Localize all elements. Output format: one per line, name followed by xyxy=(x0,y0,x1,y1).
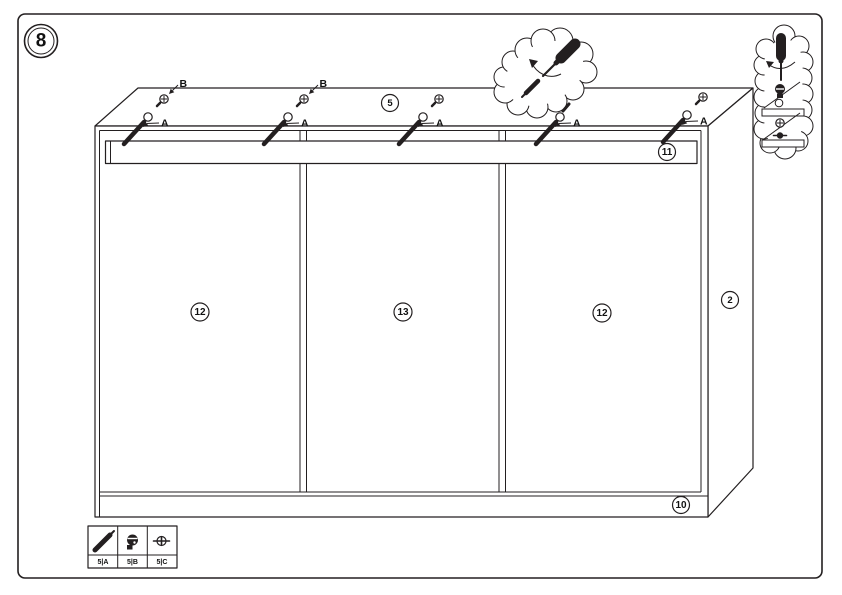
part-label-bottom-rail: 10 xyxy=(673,497,690,514)
hardware-legend: 5|A 5|B 5|C xyxy=(88,526,177,568)
part-label-right-door: 12 xyxy=(593,304,611,322)
part-label-left-door: 12 xyxy=(191,303,209,321)
svg-text:13: 13 xyxy=(397,307,409,318)
part-label-top-rail: 11 xyxy=(659,144,676,161)
callout-letter-a: A xyxy=(700,116,708,128)
front-frame xyxy=(95,126,708,517)
legend-label-b: 5|B xyxy=(127,559,138,566)
panel-edge xyxy=(762,140,804,147)
step-badge: 8 xyxy=(25,25,58,58)
callout-letter-a: A xyxy=(573,118,581,130)
assembly-detail-cloud xyxy=(754,25,813,159)
legend-label-a: 5|A xyxy=(98,559,109,566)
legend-label-c: 5|C xyxy=(157,559,168,566)
cam-hole-icon xyxy=(556,113,564,121)
part-label-top-panel: 5 xyxy=(382,95,399,112)
svg-text:12: 12 xyxy=(194,307,206,318)
part-label-middle-door: 13 xyxy=(394,303,412,321)
callout-letter-a: A xyxy=(161,118,169,130)
svg-text:11: 11 xyxy=(662,147,673,158)
callout-letter-a: A xyxy=(301,118,309,130)
svg-text:2: 2 xyxy=(727,295,732,306)
svg-text:10: 10 xyxy=(675,500,687,511)
cam-hole-icon xyxy=(683,111,691,119)
svg-text:12: 12 xyxy=(596,308,608,319)
cam-hole-icon xyxy=(775,99,783,107)
callout-letter-b: B xyxy=(180,78,188,90)
cam-hole-icon xyxy=(144,113,152,121)
screw-head-icon xyxy=(776,119,784,127)
cam-hole-icon xyxy=(284,113,292,121)
wardrobe-diagram xyxy=(95,88,753,517)
cam-hole-icon xyxy=(419,113,427,121)
instruction-page: 8 xyxy=(0,0,842,595)
callout-letter-b: B xyxy=(320,78,328,90)
step-number: 8 xyxy=(36,31,47,52)
svg-text:5: 5 xyxy=(387,98,393,109)
callout-letter-a: A xyxy=(436,118,444,130)
part-label-side-panel: 2 xyxy=(722,292,739,309)
